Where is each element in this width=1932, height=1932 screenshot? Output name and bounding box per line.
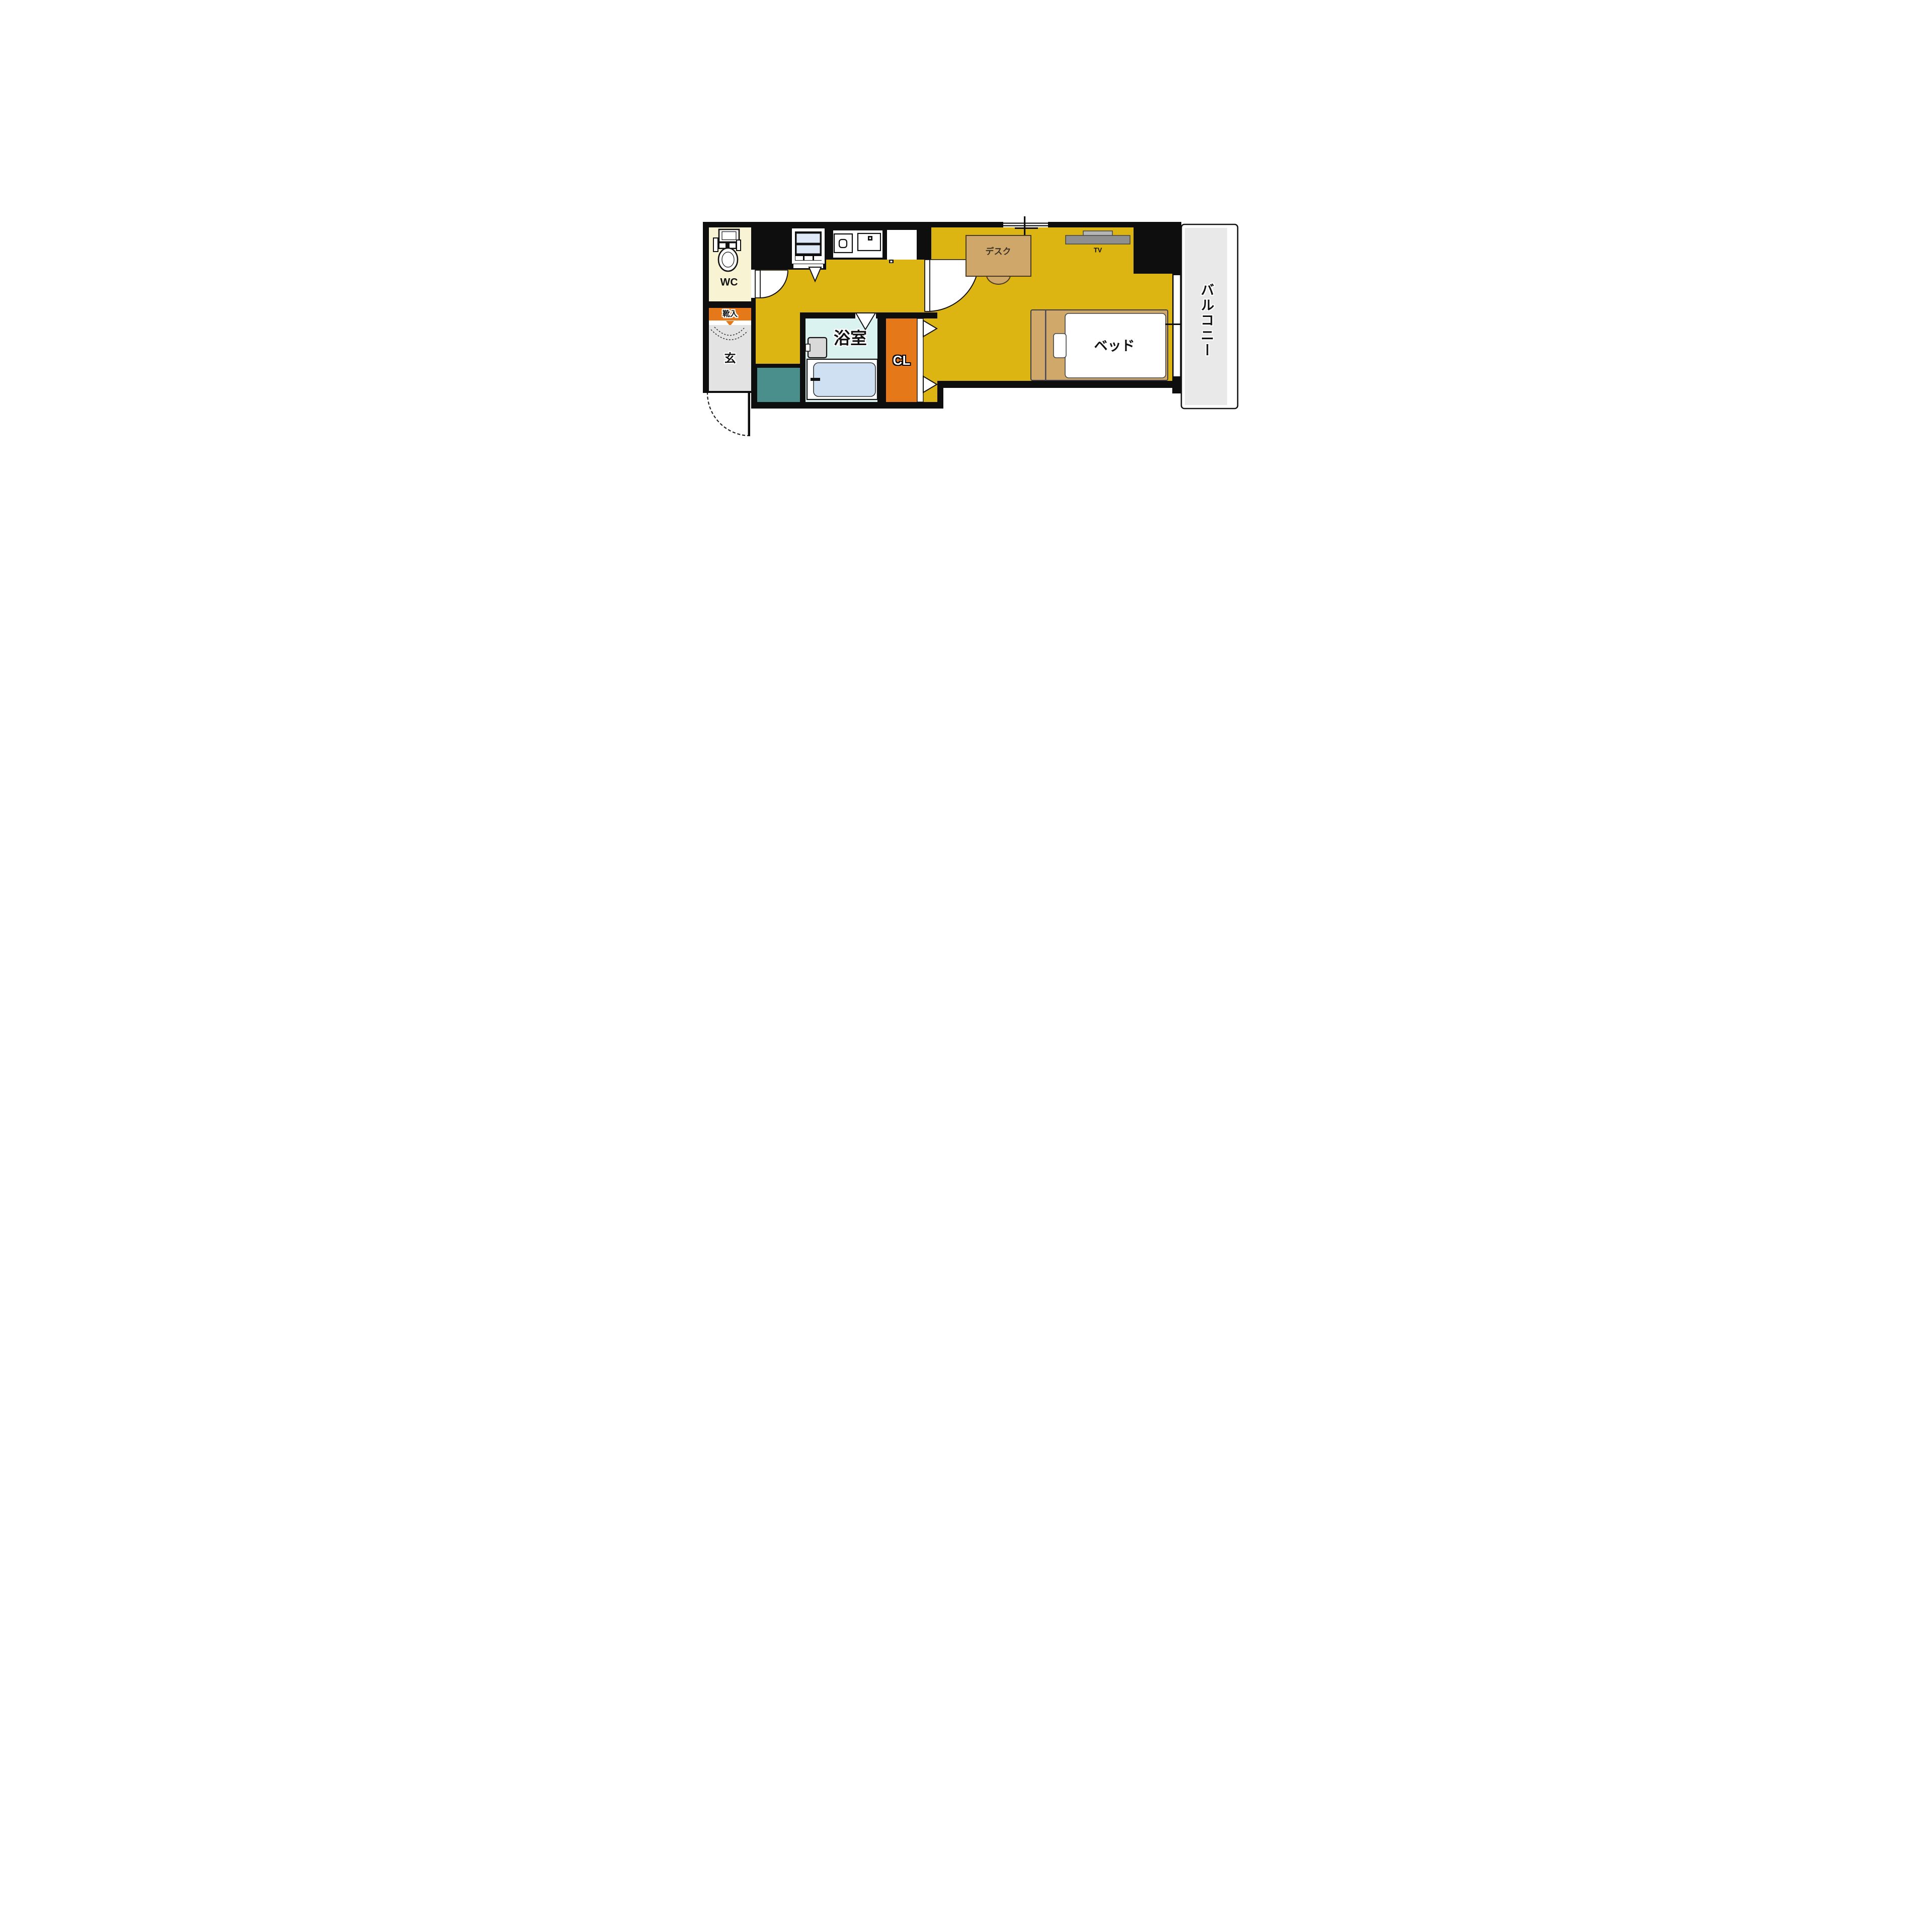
entrance-door-icon [707,393,750,436]
label-entrance: 玄 [725,353,736,364]
vanity-sink-icon [806,338,827,358]
label-balcony: バルコニー [1199,283,1213,358]
floorplan-canvas: WC 靴入 玄 浴室 CL デスク TV ベッド バルコニー [644,0,1288,644]
label-tv: TV [1094,247,1102,254]
label-closet: CL [893,354,911,367]
refrigerator-icon [887,230,917,263]
label-desk: デスク [986,248,1011,256]
label-bed: ベッド [1094,340,1135,353]
pillow-icon [1054,334,1066,358]
kitchen-counter-icon [833,230,883,258]
label-wc: WC [720,277,738,288]
label-shoe-cabinet: 靴入 [722,310,738,318]
label-bathroom: 浴室 [834,330,867,347]
bathtub-icon [807,359,877,399]
floorplan-drawing [644,0,1288,644]
washer-space-teal [757,368,800,402]
